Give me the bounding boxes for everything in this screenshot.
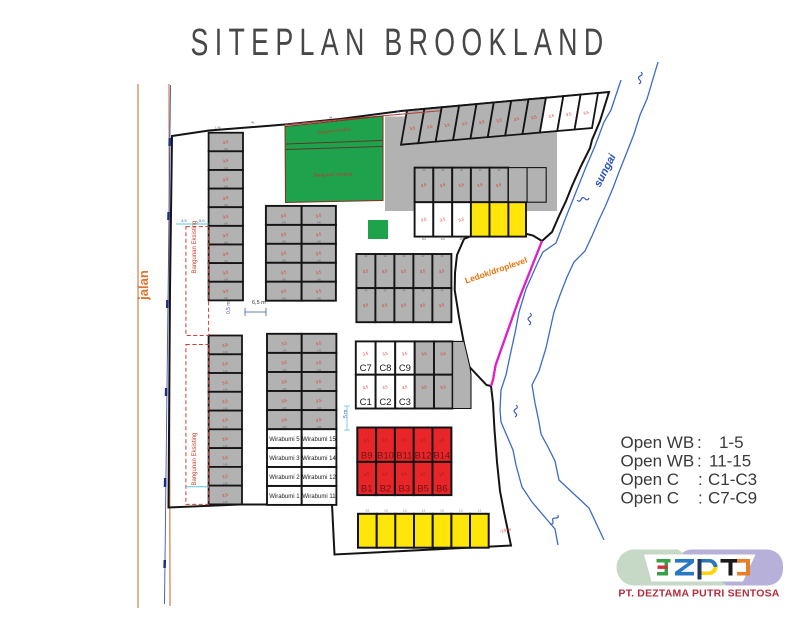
svg-text:301: 301: [459, 237, 464, 241]
svg-text:Wirabumi 11: Wirabumi 11: [302, 494, 336, 500]
svg-text:140: 140: [223, 500, 228, 504]
svg-text:B12: B12: [415, 450, 432, 461]
svg-text:1,0: 1,0: [384, 509, 388, 513]
svg-text:C1-C3: C1-C3: [708, 470, 757, 489]
svg-text:1,0: 1,0: [422, 509, 426, 513]
svg-text:B9: B9: [361, 450, 373, 461]
svg-text:Open C: Open C: [621, 470, 680, 489]
svg-text:PT. DEZTAMA PUTRI SENTOSA: PT. DEZTAMA PUTRI SENTOSA: [618, 588, 779, 600]
svg-text:B10: B10: [377, 450, 394, 461]
svg-text:301: 301: [422, 237, 427, 241]
svg-text:C8: C8: [379, 363, 391, 374]
svg-text:Wirabumi 1: Wirabumi 1: [269, 494, 300, 500]
svg-text:44: 44: [329, 116, 333, 120]
svg-text:jalan: jalan: [136, 270, 151, 301]
svg-text:Wirabumi 12: Wirabumi 12: [302, 475, 336, 481]
svg-text:C2: C2: [379, 397, 391, 408]
svg-text:C3: C3: [399, 397, 411, 408]
svg-text:Open WB: Open WB: [621, 452, 695, 471]
svg-text:5,6: 5,6: [199, 218, 205, 223]
svg-text:Open WB: Open WB: [621, 433, 695, 452]
svg-text:1,0: 1,0: [478, 509, 482, 513]
svg-text:4,5: 4,5: [181, 218, 187, 223]
svg-text:B1: B1: [361, 484, 373, 495]
svg-text:7,4,0: 7,4,0: [520, 99, 527, 103]
svg-text:1,40: 1,40: [215, 126, 221, 130]
svg-text::: :: [697, 452, 702, 471]
svg-text:1,0: 1,0: [403, 509, 407, 513]
svg-text:Bangunan Eksisting: Bangunan Eksisting: [192, 220, 198, 273]
svg-text:4,0: 4,0: [414, 109, 418, 113]
svg-text:B11: B11: [396, 450, 412, 461]
svg-text:C7: C7: [360, 363, 372, 374]
svg-text:Bangunan Eksisting: Bangunan Eksisting: [192, 432, 198, 485]
svg-text:1,0: 1,0: [459, 509, 463, 513]
svg-text:Wirabumi 3: Wirabumi 3: [269, 456, 300, 462]
svg-text::: :: [698, 470, 703, 489]
svg-text:C7-C9: C7-C9: [708, 489, 757, 508]
svg-text:Open C: Open C: [621, 489, 680, 508]
svg-text:B6: B6: [436, 484, 448, 495]
svg-text:B5: B5: [417, 484, 429, 495]
svg-text:B3: B3: [398, 484, 410, 495]
svg-text:5 m: 5 m: [343, 410, 349, 418]
svg-text:C1: C1: [360, 397, 372, 408]
svg-text::: :: [698, 489, 703, 508]
svg-text:Wirabumi 14: Wirabumi 14: [302, 456, 336, 462]
svg-text:49: 49: [251, 121, 255, 125]
svg-text:B14: B14: [433, 450, 450, 461]
svg-text:140: 140: [317, 297, 322, 301]
svg-text:11-15: 11-15: [709, 452, 751, 471]
svg-text:1,0: 1,0: [365, 509, 369, 513]
svg-text:140: 140: [282, 297, 287, 301]
svg-text:0,5 m: 0,5 m: [226, 301, 232, 314]
svg-text::: :: [697, 433, 702, 452]
svg-text:SITEPLAN BROOKLAND: SITEPLAN BROOKLAND: [191, 22, 610, 64]
svg-text:140: 140: [224, 296, 229, 300]
svg-text:B2: B2: [380, 484, 392, 495]
svg-text:1-5: 1-5: [719, 433, 744, 452]
svg-text:Wirabumi 5: Wirabumi 5: [269, 437, 300, 443]
svg-text:6,5 m: 6,5 m: [252, 300, 266, 306]
svg-text:301: 301: [441, 237, 446, 241]
svg-text:1,0: 1,0: [440, 509, 444, 513]
svg-text:Wirabumi 2: Wirabumi 2: [269, 475, 300, 481]
svg-text:C9: C9: [399, 363, 411, 374]
svg-text:Wirabumi 15: Wirabumi 15: [302, 437, 336, 443]
